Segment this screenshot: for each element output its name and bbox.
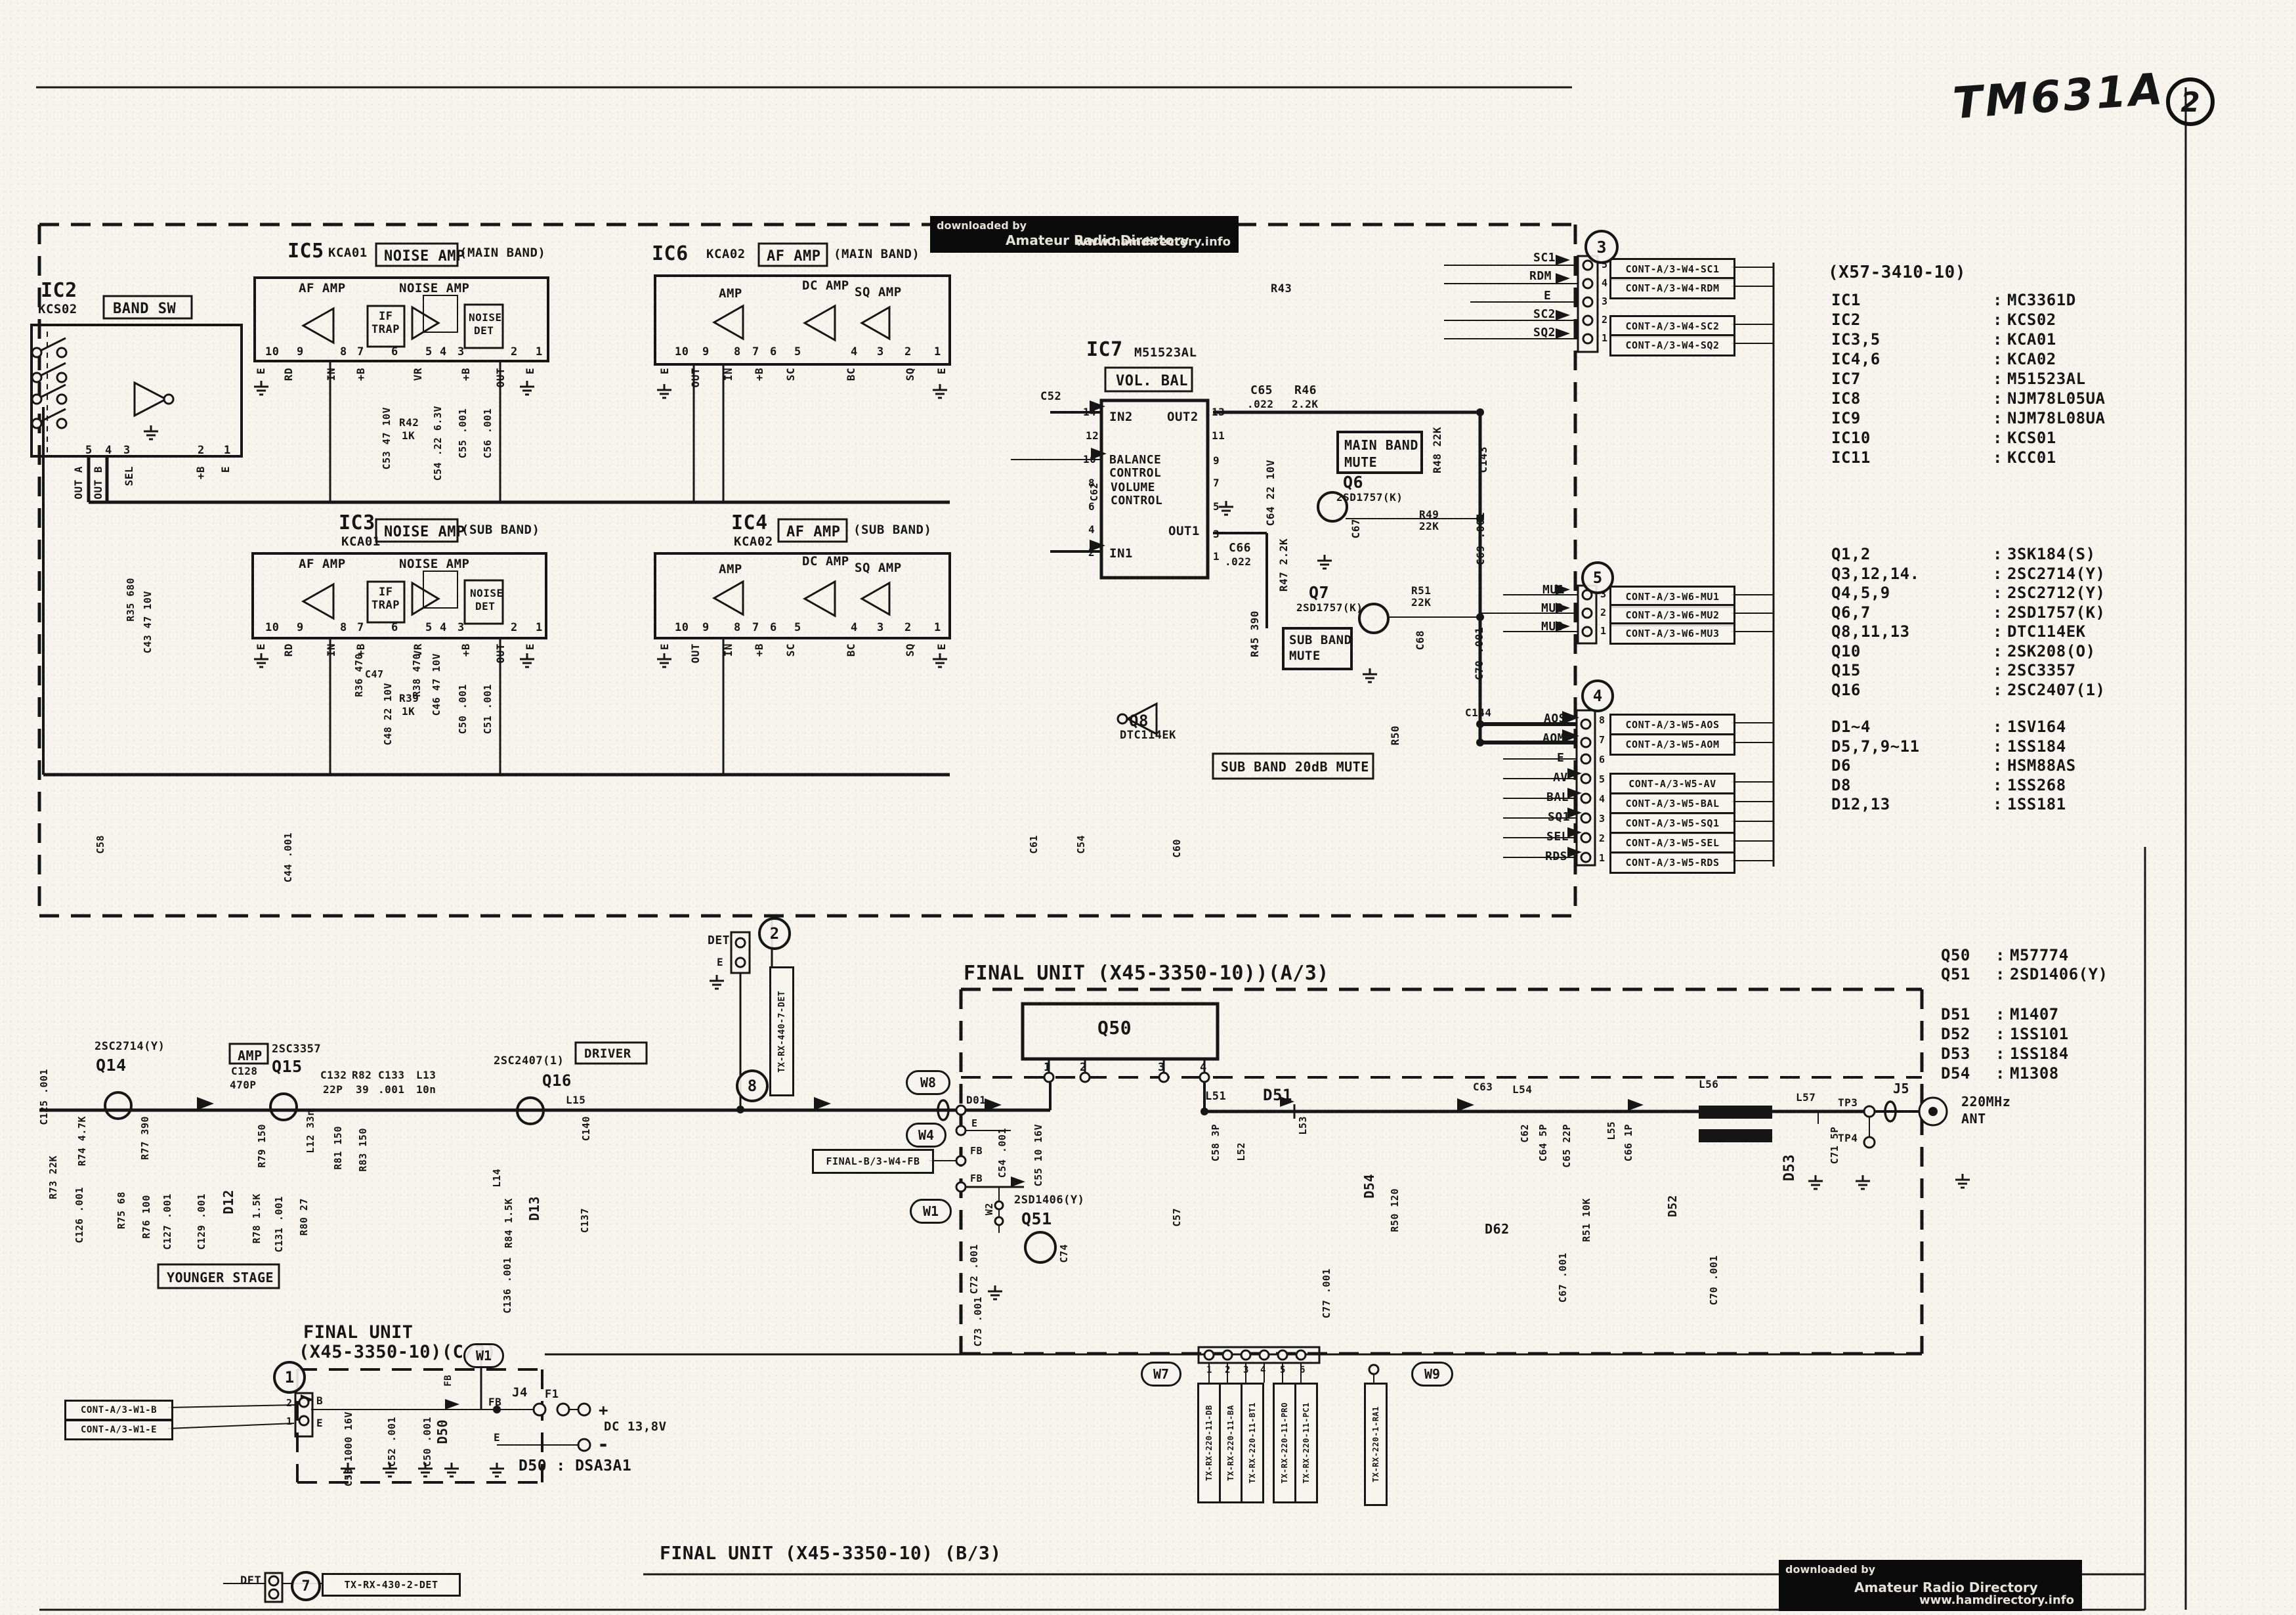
- schematic-label: 2: [511, 347, 518, 358]
- schematic-label: OUT: [496, 368, 506, 387]
- part-value: MC3361D: [2007, 292, 2076, 308]
- wire: [168, 1405, 295, 1408]
- junction-dot: [1476, 739, 1484, 746]
- schematic-label: C74: [1059, 1244, 1069, 1263]
- schematic-label: C50 .001: [423, 1417, 433, 1467]
- schematic-label: IF: [379, 587, 393, 598]
- amp-triangle: [862, 583, 889, 614]
- part-ref: IC2: [1831, 312, 1861, 328]
- part-value: 1SV164: [2007, 719, 2066, 735]
- connector-tag: CONT-A/3-W4-SQ2: [1609, 334, 1735, 356]
- part-ref: Q15: [1831, 662, 1861, 678]
- connector-tag: CONT-A/3-W1-E: [64, 1419, 173, 1440]
- connector-tag: CONT-A/3-W1-B: [64, 1400, 173, 1421]
- schematic-label: RD: [284, 643, 294, 657]
- schematic-label: C66: [1229, 542, 1251, 554]
- schematic-label: AMP: [719, 288, 742, 300]
- schematic-label: C72 .001: [969, 1244, 979, 1294]
- schematic-label: D52: [1667, 1195, 1679, 1217]
- schematic-label: FB: [488, 1397, 501, 1408]
- schematic-label: 3: [457, 622, 465, 634]
- ref-number: 1: [273, 1361, 306, 1394]
- connector-pin: [1080, 1073, 1090, 1082]
- schematic-label: 3: [457, 347, 465, 358]
- schematic-label: TRAP: [372, 600, 400, 611]
- schematic-label: FB: [970, 1146, 983, 1156]
- connector-tag-text: TX-RX-430-2-DET: [345, 1579, 438, 1591]
- schematic-label: R48 22K: [1432, 427, 1443, 473]
- schematic-label: BALANCE: [1109, 454, 1161, 466]
- schematic-label: C129 .001: [197, 1194, 207, 1250]
- part-colon: :: [1993, 605, 2003, 620]
- part-colon: :: [1995, 947, 2005, 963]
- schematic-label: C126 .001: [75, 1187, 85, 1243]
- schematic-label: C60: [1172, 839, 1182, 858]
- part-colon: :: [1993, 624, 2003, 639]
- connector-pin: [57, 395, 66, 404]
- schematic-label: 2SD1757(K): [1336, 492, 1403, 503]
- schematic-label: C52 .001: [387, 1417, 397, 1467]
- schematic-label: C54 .22 6.3V: [433, 406, 443, 481]
- component-box: [32, 325, 242, 456]
- schematic-label: MAIN BAND: [1344, 439, 1418, 452]
- schematic-label: C67: [1351, 519, 1361, 538]
- connector-pin: [32, 419, 41, 428]
- part-ref: Q8,11,13: [1831, 624, 1910, 639]
- schematic-label: SC: [786, 643, 796, 657]
- schematic-label: L57: [1796, 1092, 1816, 1103]
- part-colon: :: [1993, 662, 2003, 678]
- connector-tag: CONT-A/3-W6-MU3: [1609, 622, 1735, 645]
- schematic-label: D62: [1485, 1222, 1510, 1236]
- part-colon: :: [1993, 682, 2003, 698]
- schematic-label: C144: [1465, 708, 1492, 718]
- connector-pin: [736, 938, 745, 947]
- schematic-label: 2: [1600, 608, 1607, 618]
- schematic-label: 2: [1225, 1366, 1231, 1375]
- schematic-label: L55: [1607, 1121, 1617, 1140]
- schematic-label: AF AMP: [299, 558, 346, 571]
- connector-pin: [57, 373, 66, 382]
- part-ref: IC8: [1831, 391, 1861, 406]
- transistor-symbol: [1359, 604, 1388, 633]
- schematic-label: C55 10 16V: [1034, 1124, 1044, 1186]
- connector-tag: TX-RX-220-1-RA1: [1364, 1383, 1388, 1506]
- schematic-label: BC: [846, 643, 857, 657]
- connector-pin: [578, 1439, 590, 1451]
- part-colon: :: [1995, 1006, 2005, 1022]
- connector-pin: [1159, 1073, 1168, 1082]
- part-colon: :: [1995, 966, 2005, 982]
- schematic-label: RDS: [1545, 851, 1567, 863]
- schematic-label: .022: [1225, 557, 1252, 567]
- wire-tag: W1: [910, 1199, 952, 1224]
- schematic-label: +: [599, 1402, 608, 1418]
- connector-pin: [1118, 714, 1127, 723]
- schematic-label: 2: [1088, 548, 1095, 558]
- schematic-label: E: [660, 643, 670, 650]
- connector-tag-text: CONT-A/3-W5-BAL: [1626, 798, 1720, 809]
- schematic-label: C132: [320, 1070, 347, 1081]
- connector-pin: [1241, 1350, 1250, 1360]
- schematic-label: C70 .001: [1474, 627, 1485, 680]
- ref-number-text: 3: [1596, 238, 1606, 257]
- schematic-label: C66 1P: [1624, 1124, 1634, 1161]
- schematic-label: L56: [1699, 1079, 1718, 1090]
- part-colon: :: [1993, 312, 2003, 328]
- schematic-label: OUT B: [93, 466, 104, 500]
- schematic-label: C65 22P: [1562, 1124, 1572, 1168]
- part-ref: Q50: [1941, 947, 1970, 963]
- connector-pin: [299, 1416, 308, 1425]
- part-ref: Q51: [1941, 966, 1970, 982]
- schematic-label: 9: [702, 347, 710, 358]
- part-value: 1SS181: [2007, 796, 2066, 812]
- schematic-label: 4: [1088, 525, 1095, 535]
- part-ref: Q16: [1831, 682, 1861, 698]
- schematic-label: 2SD1406(Y): [1014, 1195, 1084, 1206]
- schematic-label: SUB BAND 20dB MUTE: [1221, 760, 1369, 773]
- schematic-label: BAL: [1546, 792, 1569, 804]
- schematic-label: 4: [440, 347, 447, 358]
- schematic-label: AF AMP: [767, 249, 820, 264]
- schematic-label: Q50: [1097, 1019, 1132, 1037]
- schematic-label: 9: [1213, 456, 1220, 466]
- schematic-label: C133: [378, 1070, 405, 1081]
- connector-pin: [1296, 1350, 1306, 1360]
- schematic-label: (MAIN BAND): [834, 248, 920, 261]
- schematic-label: (SUB BAND): [461, 524, 540, 536]
- schematic-label: YOUNGER STAGE: [167, 1271, 274, 1284]
- schematic-label: (X57-3410-10): [1828, 264, 1966, 281]
- wire-tag-text: W4: [918, 1127, 934, 1143]
- transistor-symbol: [105, 1092, 131, 1119]
- connector-tag-text: CONT-A/3-W5-AV: [1628, 778, 1716, 790]
- schematic-label: KCA01: [328, 247, 368, 259]
- part-colon: :: [1993, 719, 2003, 735]
- part-ref: D12,13: [1831, 796, 1890, 812]
- part-ref: IC3,5: [1831, 332, 1881, 347]
- connector-pin: [1583, 627, 1592, 636]
- schematic-label: IN: [326, 643, 337, 657]
- connector-pin: [32, 348, 41, 357]
- part-colon: :: [1993, 796, 2003, 812]
- schematic-label: 2SC2714(Y): [95, 1041, 165, 1052]
- connector-pin: [1581, 813, 1590, 823]
- schematic-label: 1: [934, 622, 941, 634]
- schematic-label: D51: [1263, 1087, 1292, 1103]
- schematic-label: 8: [340, 622, 347, 634]
- schematic-label: R81 150: [333, 1126, 343, 1170]
- schematic-label: 2SC3357: [272, 1044, 321, 1055]
- connector-tag-text: CONT-A/3-W4-SQ2: [1626, 339, 1720, 351]
- schematic-label: 1: [1044, 1062, 1051, 1073]
- schematic-label: 6: [391, 347, 398, 358]
- schematic-label: 3: [877, 347, 884, 358]
- schematic-label: SQ AMP: [855, 286, 902, 299]
- schematic-label: SUB BAND: [1289, 634, 1352, 647]
- schematic-label: +B: [461, 368, 471, 381]
- watermark-line3: www.hamdirectory.info: [1919, 1593, 2074, 1607]
- part-ref: IC11: [1831, 450, 1871, 465]
- schematic-label: AF AMP: [299, 282, 346, 295]
- part-colon: :: [1993, 585, 2003, 601]
- schematic-label: C128: [231, 1066, 258, 1077]
- connector-tag: CONT-A/3-W5-SQ1: [1609, 812, 1735, 834]
- part-value: DTC114EK: [2007, 624, 2086, 639]
- schematic-label: R51 10K: [1582, 1198, 1592, 1242]
- connector-tag: TX-RX-220-11-PRO: [1273, 1383, 1296, 1503]
- schematic-label: R38 470: [412, 653, 422, 697]
- wire-tag-text: W9: [1424, 1366, 1440, 1382]
- part-colon: :: [1995, 1066, 2005, 1081]
- schematic-label: Q6: [1343, 474, 1363, 490]
- connector-pin: [1260, 1350, 1269, 1360]
- schematic-label: 8: [734, 622, 741, 634]
- schematic-label: NOISE: [469, 312, 502, 323]
- schematic-label: C131 .001: [274, 1196, 284, 1253]
- schematic-label: L51: [1205, 1091, 1226, 1102]
- connector-tag-text: CONT-A/3-W4-SC1: [1626, 263, 1720, 275]
- schematic-label: E: [256, 368, 266, 374]
- part-colon: :: [1993, 332, 2003, 347]
- schematic-label: C73 .001: [973, 1297, 983, 1346]
- part-value: 1SS184: [2007, 739, 2066, 754]
- schematic-label: R84 1.5K: [504, 1198, 514, 1248]
- connector-pin: [1581, 720, 1590, 729]
- schematic-label: C55 .001: [458, 408, 468, 458]
- schematic-label: 11: [1212, 431, 1225, 441]
- schematic-label: SQ2: [1533, 327, 1556, 339]
- schematic-label: 6: [1599, 755, 1605, 765]
- part-value: 2SD1757(K): [2007, 605, 2106, 620]
- connector-pin: [1223, 1350, 1232, 1360]
- connector-pin: [1864, 1106, 1875, 1117]
- amp-triangle: [714, 582, 743, 614]
- connector-pin: [164, 395, 173, 404]
- schematic-label: 3: [1213, 529, 1220, 540]
- schematic-label: SQ AMP: [855, 562, 902, 574]
- wire-tag-text: W1: [476, 1348, 492, 1364]
- arrowhead: [1556, 328, 1570, 339]
- schematic-label: 2: [1599, 834, 1605, 844]
- schematic-label: IC2: [41, 281, 77, 301]
- schematic-label: 7: [752, 347, 759, 358]
- part-value: 2SD1406(Y): [2010, 966, 2108, 982]
- schematic-label: IN1: [1109, 548, 1133, 560]
- arrowhead: [1556, 273, 1570, 284]
- schematic-label: 1: [1213, 551, 1220, 562]
- part-ref: D54: [1941, 1066, 1970, 1081]
- connector-tag-text: FINAL-B/3-W4-FB: [826, 1155, 920, 1167]
- schematic-label: R42: [399, 418, 419, 428]
- schematic-label: +B: [754, 643, 765, 657]
- schematic-label: E: [937, 368, 947, 374]
- part-value: NJM78L05UA: [2007, 391, 2106, 406]
- connector-pin: [57, 348, 66, 357]
- schematic-label: IN: [723, 368, 734, 381]
- schematic-label: E: [494, 1432, 500, 1443]
- schematic-label: SQ1: [1548, 811, 1570, 823]
- schematic-label: C58 3P: [1211, 1124, 1221, 1161]
- ref-number-text: 1: [285, 1368, 294, 1387]
- schematic-label: R73 22K: [49, 1155, 58, 1199]
- ref-number: 7: [291, 1571, 321, 1601]
- junction-dot: [736, 1106, 744, 1113]
- schematic-label: C52: [1040, 391, 1061, 402]
- schematic-label: DC AMP: [802, 280, 849, 292]
- part-value: KCC01: [2007, 450, 2056, 465]
- schematic-label: KCA02: [706, 248, 746, 261]
- amp-triangle: [135, 383, 166, 416]
- schematic-label: DET: [475, 601, 495, 612]
- schematic-label: R50: [1390, 725, 1401, 745]
- connector-tag: TX-RX-430-2-DET: [322, 1573, 461, 1597]
- schematic-label: 8: [734, 347, 741, 358]
- schematic-label: OUT: [496, 643, 506, 663]
- schematic-label: E: [316, 1418, 323, 1429]
- connector-tag-text: TX-RX-440-7-DET: [777, 991, 787, 1073]
- schematic-label: 1: [934, 347, 941, 358]
- connector-tag: TX-RX-220-11-BT1: [1241, 1383, 1264, 1503]
- schematic-label: C54: [1076, 835, 1086, 854]
- schematic-label: 220MHz: [1961, 1095, 2010, 1108]
- transistor-symbol: [270, 1094, 297, 1120]
- connector-tag-text: CONT-A/3-W6-MU3: [1626, 628, 1720, 639]
- connector-tag: CONT-A/3-W5-SEL: [1609, 832, 1735, 854]
- schematic-label: C56 .001: [483, 408, 493, 458]
- schematic-label: Q15: [272, 1058, 303, 1075]
- schematic-label: 3: [1158, 1062, 1165, 1073]
- schematic-label: RDM: [1529, 270, 1552, 282]
- schematic-label: NOISE AMP: [384, 249, 465, 264]
- schematic-label: 39: [356, 1085, 369, 1095]
- schematic-label: 22K: [1419, 521, 1439, 532]
- connector-pin: [1864, 1137, 1875, 1148]
- schematic-label: D50: [436, 1419, 449, 1444]
- schematic-label: BC: [846, 368, 857, 381]
- schematic-label: C64 22 10V: [1265, 460, 1276, 526]
- schematic-label: 5: [1280, 1366, 1286, 1375]
- schematic-label: 1: [1600, 626, 1607, 636]
- schematic-label: 5: [85, 445, 93, 456]
- schematic-label: SC1: [1533, 252, 1556, 264]
- amp-triangle: [862, 307, 889, 339]
- schematic-label: KCA02: [734, 536, 773, 548]
- schematic-label: OUT1: [1168, 525, 1200, 538]
- wire-tag: W7: [1141, 1362, 1181, 1387]
- schematic-label: C58: [96, 835, 106, 854]
- schematic-label: 5: [1599, 775, 1605, 785]
- schematic-label: .022: [1247, 399, 1274, 410]
- schematic-label: L52: [1237, 1142, 1246, 1161]
- schematic-label: C140: [582, 1116, 591, 1141]
- connector-pin: [578, 1404, 590, 1415]
- arrowhead: [445, 1399, 459, 1410]
- ref-number-text: 5: [1593, 569, 1602, 587]
- schematic-label: 3: [1602, 297, 1608, 307]
- schematic-label: R36 470: [354, 653, 364, 697]
- schematic-label: AV: [1553, 772, 1568, 784]
- schematic-label: 1K: [402, 431, 415, 441]
- schematic-label: C54 .001: [998, 1128, 1008, 1178]
- connector-tag: CONT-A/3-W5-AOM: [1609, 733, 1735, 756]
- connector-tag-text: TX-RX-220-11-PRO: [1280, 1402, 1289, 1484]
- wire-tag-text: W8: [920, 1075, 936, 1090]
- arrowhead: [1556, 310, 1570, 320]
- schematic-label: R49: [1419, 509, 1439, 520]
- part-value: KCA02: [2007, 351, 2056, 367]
- schematic-label: NOISE AMP: [399, 282, 469, 295]
- part-ref: IC10: [1831, 430, 1871, 446]
- schematic-label: E: [525, 368, 536, 374]
- wire-tag: W4: [906, 1123, 946, 1148]
- schematic-label: VR: [413, 368, 423, 381]
- schematic-label: 2: [1602, 315, 1608, 325]
- part-value: 2SC2714(Y): [2007, 566, 2106, 582]
- arrowhead: [1628, 1099, 1644, 1111]
- component-box: [423, 571, 457, 608]
- connector-tag-text: TX-RX-220-11-BT1: [1248, 1402, 1257, 1484]
- ref-number: 4: [1581, 679, 1614, 712]
- connector-pin: [32, 395, 41, 404]
- schematic-label: 4: [851, 347, 858, 358]
- schematic-label: E: [221, 466, 231, 473]
- schematic-label: 5: [425, 347, 433, 358]
- wire-tag: W8: [906, 1070, 950, 1095]
- schematic-label: AOM: [1542, 733, 1565, 744]
- schematic-label: 4: [1260, 1366, 1266, 1375]
- wire-tag: W9: [1411, 1362, 1453, 1387]
- schematic-label: D13: [528, 1196, 541, 1221]
- schematic-label: R74 4.7K: [77, 1116, 87, 1166]
- schematic-label: 4: [1200, 1062, 1207, 1073]
- schematic-label: C125 .001: [39, 1069, 49, 1125]
- connector-pin: [1200, 1073, 1209, 1082]
- schematic-label: SC: [786, 368, 796, 381]
- part-value: KCS01: [2007, 430, 2056, 446]
- schematic-label: MU1: [1542, 584, 1565, 596]
- schematic-label: IC7: [1086, 340, 1123, 360]
- amp-triangle: [303, 584, 333, 618]
- part-ref: D6: [1831, 758, 1851, 773]
- part-ref: IC7: [1831, 371, 1861, 387]
- schematic-label: R43: [1271, 284, 1292, 295]
- ref-number-text: 7: [301, 1578, 310, 1595]
- schematic-label: R78 1.5K: [252, 1194, 262, 1243]
- schematic-label: (SUB BAND): [853, 524, 931, 536]
- schematic-label: Q51: [1021, 1211, 1052, 1227]
- schematic-label: E: [256, 643, 266, 650]
- connector-pin: [299, 1398, 308, 1407]
- connector-tag: TX-RX-220-11-PC1: [1294, 1383, 1318, 1503]
- connector-tag: FINAL-B/3-W4-FB: [812, 1149, 934, 1174]
- schematic-label: C44 .001: [284, 832, 293, 882]
- schematic-label: 2: [1080, 1062, 1087, 1073]
- connector-pin: [1369, 1365, 1378, 1374]
- part-ref: Q1,2: [1831, 546, 1871, 562]
- part-colon: :: [1993, 351, 2003, 367]
- schematic-label: Q8: [1129, 713, 1149, 729]
- junction-dot: [1476, 720, 1484, 728]
- schematic-label: E: [1557, 752, 1564, 764]
- schematic-label: 22K: [1411, 597, 1431, 608]
- stripline-bar: [1699, 1106, 1772, 1119]
- schematic-label: D50 : DSA3A1: [519, 1459, 631, 1474]
- part-ref: D1~4: [1831, 719, 1871, 735]
- part-colon: :: [1993, 546, 2003, 562]
- schematic-label: TP4: [1838, 1133, 1858, 1144]
